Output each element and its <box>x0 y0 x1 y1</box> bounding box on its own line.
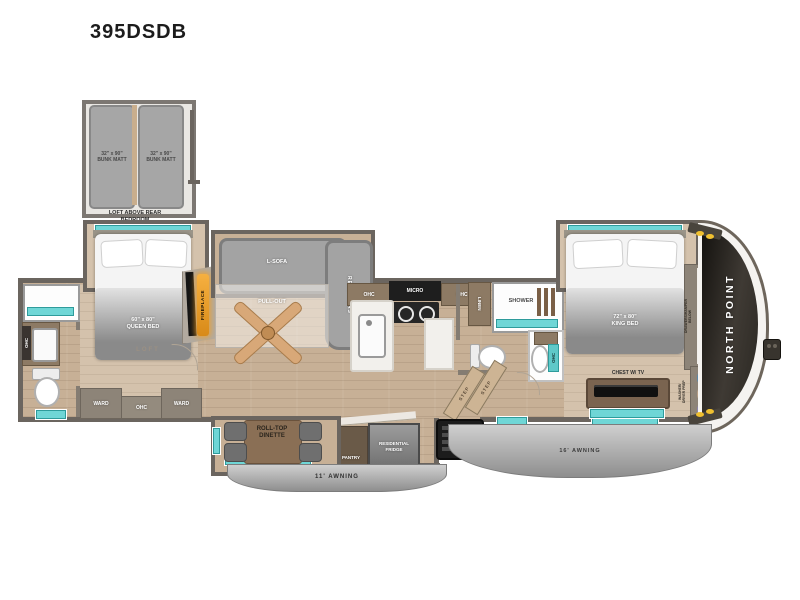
rear-ward-left-label: WARD <box>93 401 108 407</box>
mid-vanity-sink <box>531 345 549 373</box>
midbath-ohc-label: OHC <box>551 353 556 363</box>
laundry-note: WASHER/ DRYER PREP <box>678 368 690 416</box>
pantry-label: PANTRY <box>342 455 360 460</box>
microwave-label: MICRO <box>407 288 424 294</box>
residential-fridge: RESIDENTIAL FRIDGE <box>368 423 420 470</box>
bedroom-window-bottom <box>590 409 664 418</box>
rear-ohc: OHC <box>121 396 162 419</box>
marker-light-top-1 <box>696 231 704 236</box>
chest-tv <box>594 385 658 397</box>
bunk-left-label: 32" x 90" BUNK MATT <box>97 151 126 163</box>
linen-label: LINEN <box>477 297 482 311</box>
rearbath-wall-lower <box>76 386 80 417</box>
chest-label: CHEST W/ TV <box>592 370 664 376</box>
island-sink <box>358 314 386 358</box>
linen-cabinet: LINEN <box>468 282 491 326</box>
rear-ward-left: WARD <box>80 388 122 419</box>
bunk-mattress-left: 32" x 90" BUNK MATT <box>89 105 135 209</box>
floorplan-395dsdb: 395DSDB 32" x 90" BUNK MATT 32" x 90" BU… <box>0 0 800 600</box>
hitch-dot-1 <box>767 344 771 348</box>
dinette-chair-2 <box>224 443 247 462</box>
rearbath-ohc-strip: OHC <box>22 326 31 360</box>
fridge-label: RESIDENTIAL FRIDGE <box>379 441 409 452</box>
king-blanket: 72" x 80" KING BED <box>566 288 684 354</box>
rear-ward-right: WARD <box>161 388 202 419</box>
shower-door-slat-1 <box>537 288 541 316</box>
queen-bed-label: 60" x 80" QUEEN BED <box>127 317 160 330</box>
marker-light-top-2 <box>706 234 714 239</box>
window-bottom-left <box>36 410 66 419</box>
rear-shower <box>23 284 80 322</box>
brand-name: NORTH POINT <box>724 274 737 374</box>
midbath-ohc-strip: OHC <box>548 344 559 372</box>
awning-16ft: 16' AWNING <box>448 424 712 478</box>
awning-16ft-label: 16' AWNING <box>559 448 600 455</box>
fireplace-label: FIREPLACE <box>200 290 205 320</box>
rear-vanity-sink <box>32 328 58 362</box>
l-sofa-label: L-SOFA <box>242 259 312 266</box>
rearbath-ohc-label: OHC <box>24 338 29 348</box>
marker-light-bottom-1 <box>696 412 704 417</box>
fireplace-glow: FIREPLACE <box>197 274 209 336</box>
shower-door-slat-2 <box>544 288 548 316</box>
awning-11ft: 11' AWNING <box>227 464 447 492</box>
kitchen-ohc-left-label: OHC <box>363 292 374 298</box>
queen-pillow-left <box>100 239 143 268</box>
burner-left <box>398 306 414 322</box>
bunk-right-label: 32" x 90" BUNK MATT <box>146 151 175 163</box>
dinette-label: ROLL-TOP DINETTE <box>232 426 312 440</box>
midbath-wall-left <box>456 284 460 340</box>
kitchen-counter-right <box>424 318 454 370</box>
hitch-dot-2 <box>773 344 777 348</box>
ceiling-fan-hub <box>261 326 275 340</box>
microwave: MICRO <box>389 281 441 301</box>
island-faucet <box>366 320 372 326</box>
bunk-mattress-right: 32" x 90" BUNK MATT <box>138 105 184 209</box>
loft-wall-jog-v <box>190 110 194 184</box>
rear-toilet-bowl <box>34 377 60 407</box>
rear-shower-water <box>27 307 74 316</box>
king-pillow-left <box>572 239 623 270</box>
rear-ward-right-label: WARD <box>174 401 189 407</box>
rear-ohc-label: OHC <box>136 405 147 411</box>
hitch-pin <box>763 339 781 360</box>
closet-note: DRAWERS/HAMPER BELOW <box>684 268 696 364</box>
loft-wall-jog-h <box>188 180 200 184</box>
marker-light-bottom-2 <box>706 409 714 414</box>
dinette-window-side <box>213 428 220 454</box>
mid-shower-water <box>496 319 558 328</box>
shower-door-slat-3 <box>551 288 555 316</box>
step-2-label: STEP <box>480 379 493 395</box>
dinette-chair-4 <box>299 443 322 462</box>
awning-11ft-label: 11' AWNING <box>315 474 359 481</box>
bunk-divider <box>132 105 137 205</box>
king-pillow-right <box>626 239 677 270</box>
page-title: 395DSDB <box>90 20 310 44</box>
queen-pillow-right <box>144 239 187 268</box>
wall-top-1 <box>18 278 88 283</box>
loft-floor-label: LOFT <box>118 347 178 354</box>
king-bed-label: 72" x 80" KING BED <box>612 314 639 327</box>
